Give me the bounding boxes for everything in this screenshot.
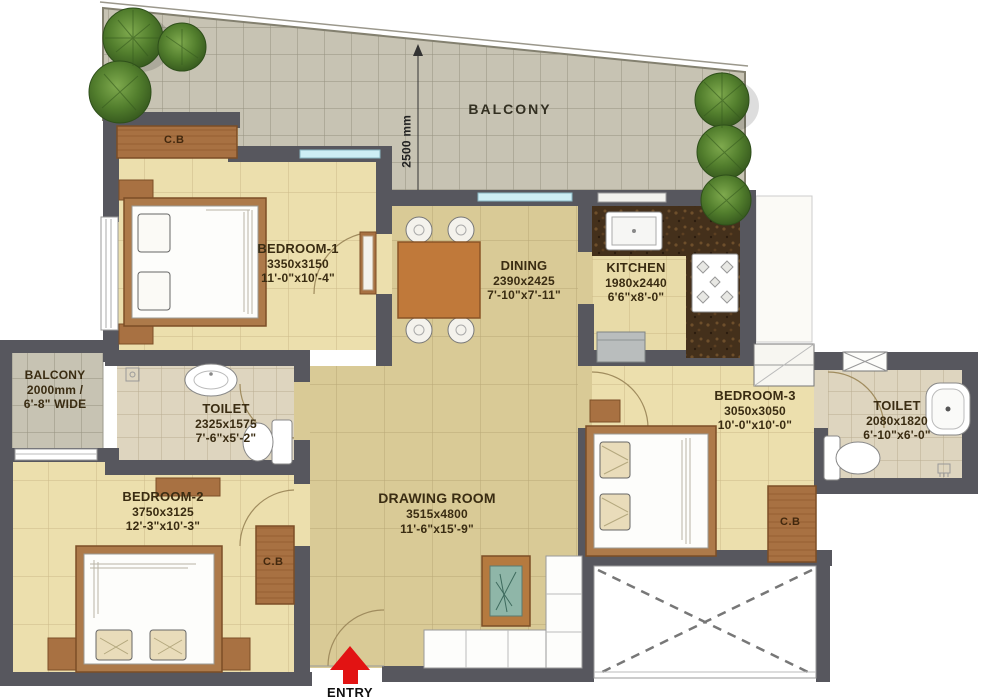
service-shaft bbox=[756, 196, 812, 342]
size-ft: 6'6"x8'-0" bbox=[536, 290, 736, 305]
drawing-room-label: DRAWING ROOM 3515x4800 11'-6"x15'-9" bbox=[337, 490, 537, 536]
bedroom2-label: BEDROOM-2 3750x3125 12'-3"x10'-3" bbox=[63, 489, 263, 534]
void-area bbox=[594, 566, 816, 678]
wardrobe-icon bbox=[754, 344, 814, 386]
window-toilet2 bbox=[843, 352, 887, 371]
balcony-left-label: BALCONY 2000mm / 6'-8" WIDE bbox=[3, 368, 107, 412]
fridge-icon bbox=[597, 332, 645, 362]
cupboard-label-bedroom2: C.B bbox=[263, 556, 283, 568]
bed-icon bbox=[586, 426, 716, 556]
size-mm: 3750x3125 bbox=[63, 505, 263, 520]
kitchen-label: KITCHEN 1980x2440 6'6"x8'-0" bbox=[536, 260, 736, 305]
balcony-depth-label: 2500 mm bbox=[400, 96, 415, 186]
size-mm: 1980x2440 bbox=[536, 276, 736, 291]
nightstand-icon bbox=[119, 324, 153, 344]
size-ft: 11'-6"x15'-9" bbox=[337, 522, 537, 537]
size-mm: 2080x1820 bbox=[797, 414, 997, 429]
window-bedroom1-left bbox=[101, 217, 118, 330]
size-mm: 2000mm / bbox=[3, 383, 107, 398]
toilet2-label: TOILET 2080x1820 6'-10"x6'-0" bbox=[797, 398, 997, 443]
size-ft: 7'-6"x5'-2" bbox=[126, 431, 326, 446]
bed-icon bbox=[76, 546, 222, 672]
size-ft: 11'-0"x10'-4" bbox=[198, 271, 398, 286]
room-name: BALCONY bbox=[3, 368, 107, 383]
room-name: BEDROOM-1 bbox=[198, 241, 398, 257]
nightstand-icon bbox=[590, 400, 620, 422]
planter-icon bbox=[482, 556, 530, 626]
size-mm: 3515x4800 bbox=[337, 507, 537, 522]
window-kitchen bbox=[598, 193, 666, 202]
bedroom1-label: BEDROOM-1 3350x3150 11'-0"x10'-4" bbox=[198, 241, 398, 286]
room-name: DRAWING ROOM bbox=[337, 490, 537, 507]
balcony-top-label: BALCONY bbox=[430, 101, 590, 118]
entry-label: ENTRY bbox=[300, 685, 400, 700]
window-bedroom2-balcony bbox=[15, 449, 97, 460]
window-bedroom1-top bbox=[300, 150, 380, 158]
sink-icon bbox=[606, 212, 662, 250]
size-ft: 12'-3"x10'-3" bbox=[63, 519, 263, 534]
size-mm: 3350x3150 bbox=[198, 257, 398, 272]
room-name: TOILET bbox=[126, 401, 326, 417]
nightstand-icon bbox=[222, 638, 250, 670]
room-name: KITCHEN bbox=[536, 260, 736, 276]
cupboard-label-bedroom3: C.B bbox=[780, 516, 800, 528]
washbasin-icon bbox=[185, 364, 237, 396]
room-name: BALCONY bbox=[430, 101, 590, 118]
window-dining bbox=[478, 193, 572, 201]
nightstand-icon bbox=[48, 638, 76, 670]
size-ft: 6'-10"x6'-0" bbox=[797, 428, 997, 443]
nightstand-icon bbox=[119, 180, 153, 200]
room-name: TOILET bbox=[797, 398, 997, 414]
size-ft: 6'-8" WIDE bbox=[3, 397, 107, 412]
floor-plan: BALCONY 2500 mm BEDROOM-1 3350x3150 11'-… bbox=[0, 0, 1000, 700]
room-name: BEDROOM-2 bbox=[63, 489, 263, 505]
cupboard-label-bedroom1: C.B bbox=[164, 134, 184, 146]
dimension-text: 2500 mm bbox=[400, 96, 415, 186]
toilet1-label: TOILET 2325x1575 7'-6"x5'-2" bbox=[126, 401, 326, 446]
size-mm: 2325x1575 bbox=[126, 417, 326, 432]
